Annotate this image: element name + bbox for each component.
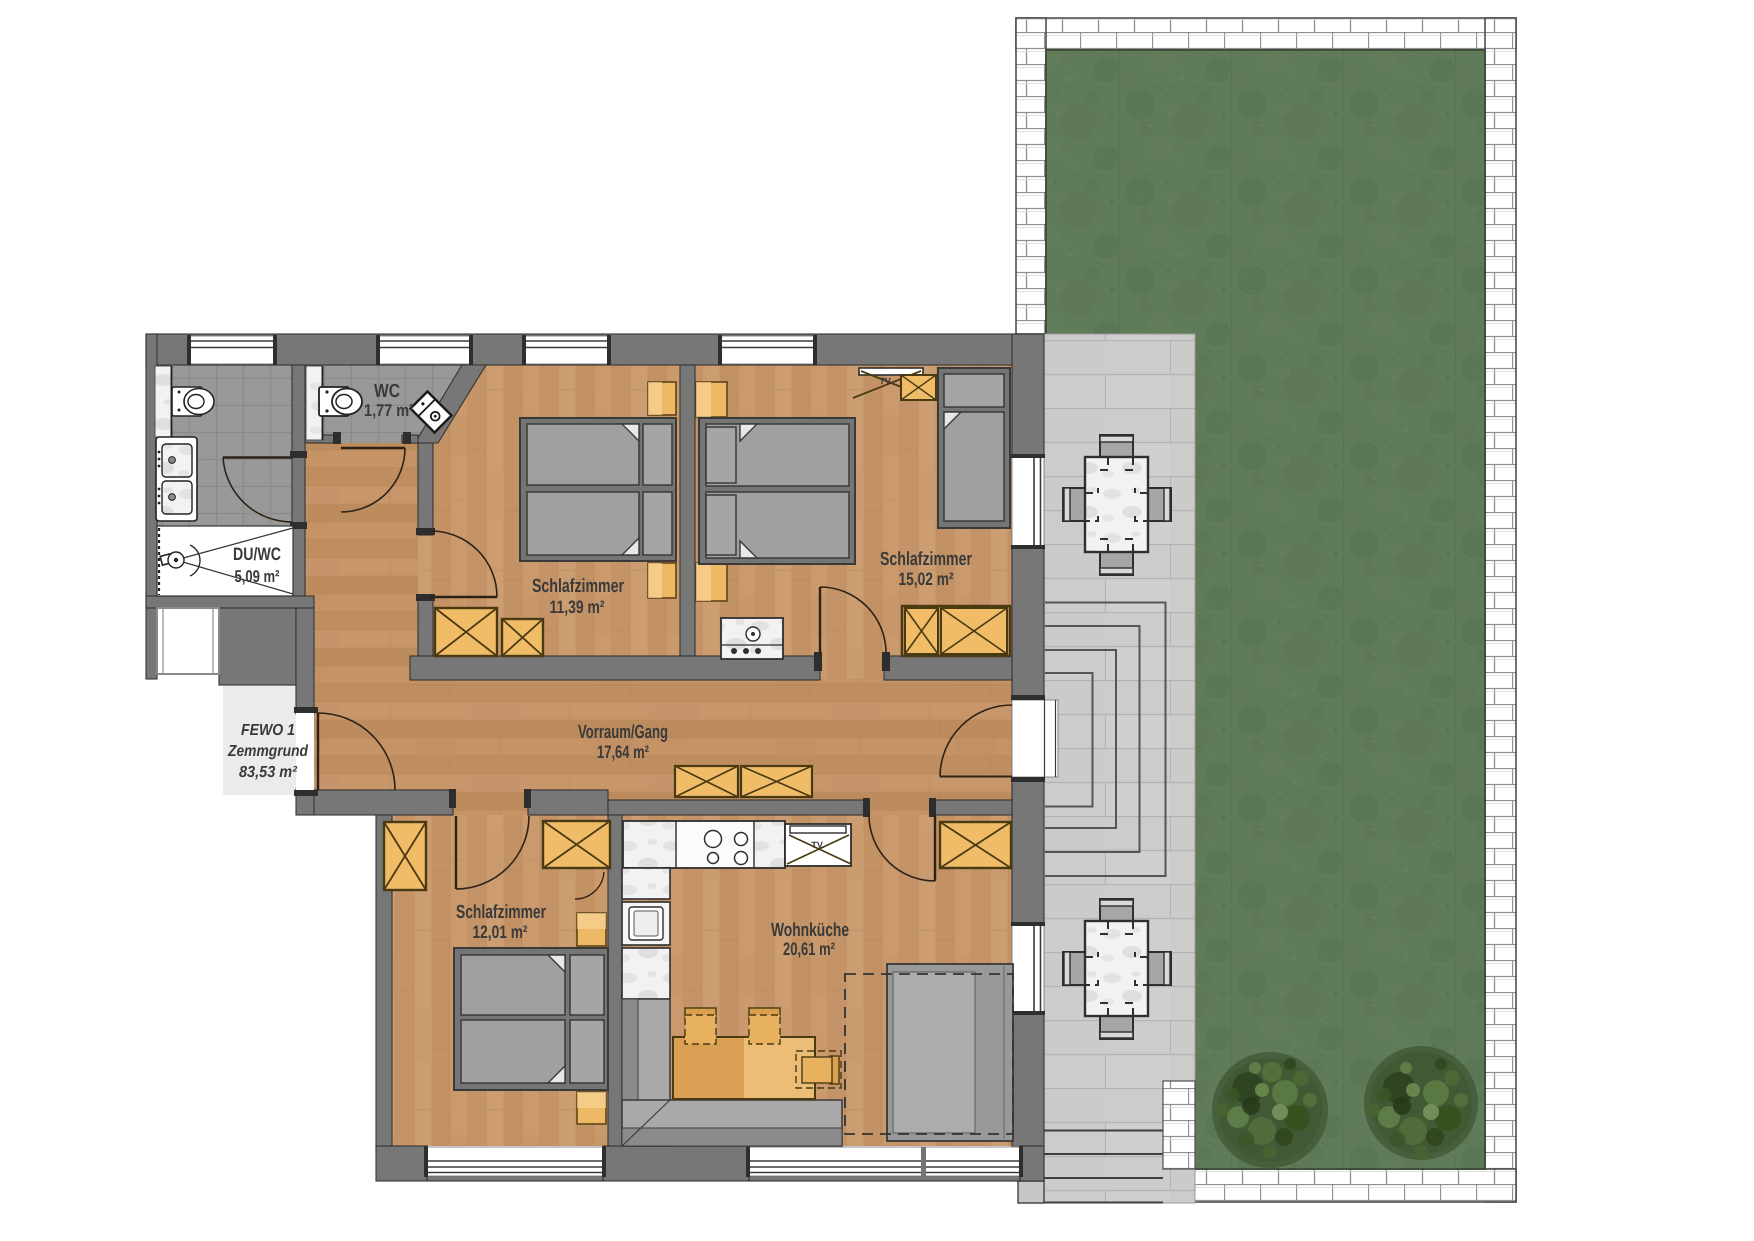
svg-text:Schlafzimmer: Schlafzimmer xyxy=(532,576,624,597)
svg-text:TV.: TV. xyxy=(811,840,824,850)
svg-text:20,61 m²: 20,61 m² xyxy=(783,939,835,959)
svg-text:DU/WC: DU/WC xyxy=(233,544,281,564)
svg-text:15,02 m²: 15,02 m² xyxy=(899,569,954,589)
svg-text:Schlafzimmer: Schlafzimmer xyxy=(456,902,546,923)
svg-text:12,01 m²: 12,01 m² xyxy=(473,922,528,942)
svg-text:83,53 m²: 83,53 m² xyxy=(239,764,298,781)
svg-text:WC: WC xyxy=(374,381,400,402)
svg-text:Vorraum/Gang: Vorraum/Gang xyxy=(578,722,668,743)
svg-text:17,64 m²: 17,64 m² xyxy=(597,742,649,762)
svg-text:TV.: TV. xyxy=(879,376,892,386)
svg-text:1,77 m²: 1,77 m² xyxy=(364,401,414,420)
svg-text:FEWO 1: FEWO 1 xyxy=(241,722,295,739)
svg-text:5,09 m²: 5,09 m² xyxy=(235,567,280,586)
svg-text:Zemmgrund: Zemmgrund xyxy=(227,743,309,760)
svg-text:Wohnküche: Wohnküche xyxy=(771,920,849,941)
svg-text:11,39 m²: 11,39 m² xyxy=(550,597,605,617)
svg-text:Schlafzimmer: Schlafzimmer xyxy=(880,549,972,570)
